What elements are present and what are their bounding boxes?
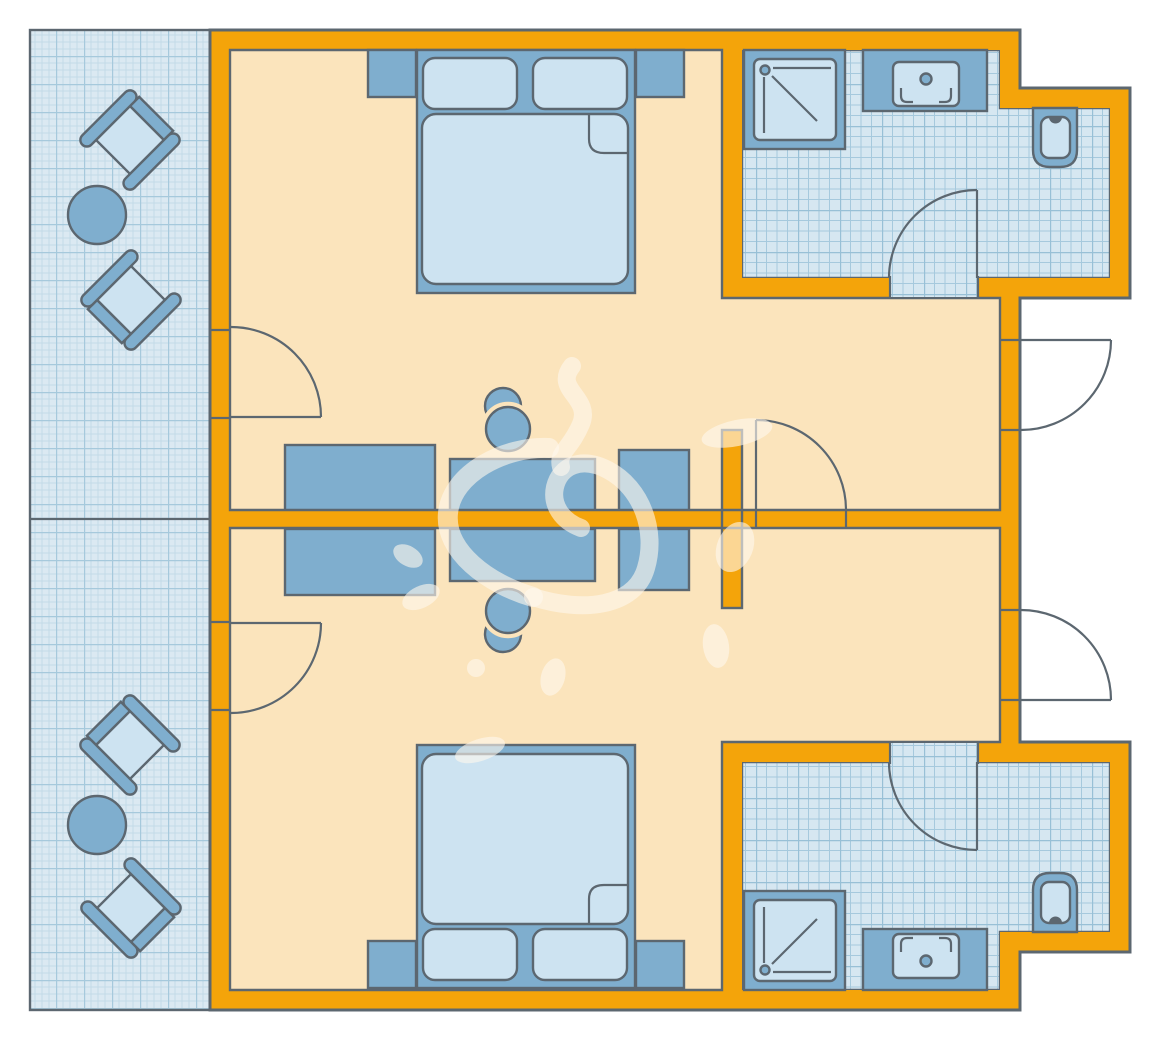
wall-top bbox=[210, 30, 1020, 50]
wall-stub bbox=[722, 430, 742, 608]
wall-bath-bottom-top-b bbox=[978, 742, 1130, 762]
wall-bath-top-bottom-a bbox=[722, 278, 890, 298]
wall-right-lower bbox=[1000, 952, 1020, 1010]
floor-plan-svg bbox=[0, 0, 1161, 1057]
wall-bath-top-left bbox=[722, 30, 742, 298]
balcony-table bbox=[68, 186, 126, 244]
floor-plan bbox=[0, 0, 1161, 1057]
wall-ext-right-top bbox=[1110, 88, 1130, 298]
wall-divider bbox=[210, 510, 1020, 528]
wall-bottom bbox=[210, 990, 1020, 1010]
door-arc bbox=[1021, 610, 1111, 700]
door-arc bbox=[1021, 340, 1111, 430]
wall-right-upper bbox=[1000, 30, 1020, 88]
bath-bottom-door-strip bbox=[891, 743, 977, 765]
wall-ext-right-bottom bbox=[1110, 742, 1130, 952]
wall-bath-bottom-top-a bbox=[722, 742, 890, 762]
bath-top-door-strip bbox=[891, 275, 977, 297]
balcony-table bbox=[68, 796, 126, 854]
wall-bath-bottom-left bbox=[722, 742, 742, 1010]
wall-bath-top-bottom-b bbox=[978, 278, 1130, 298]
